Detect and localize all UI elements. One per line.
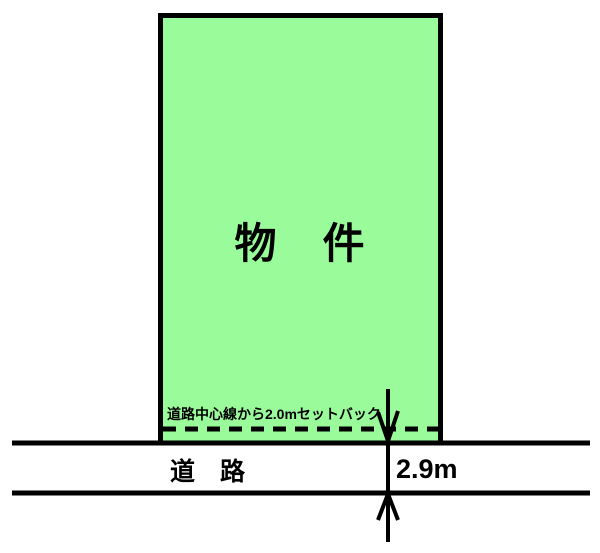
road-label: 道 路 [170,452,245,488]
site-plan-diagram: 物 件 道路中心線から2.0mセットバック 道 路 2.9m [0,0,600,553]
setback-note-label: 道路中心線から2.0mセットバック [167,404,381,424]
diagram-lines-layer [0,0,600,553]
road-width-label: 2.9m [396,454,458,485]
parcel-label: 物 件 [158,210,443,271]
